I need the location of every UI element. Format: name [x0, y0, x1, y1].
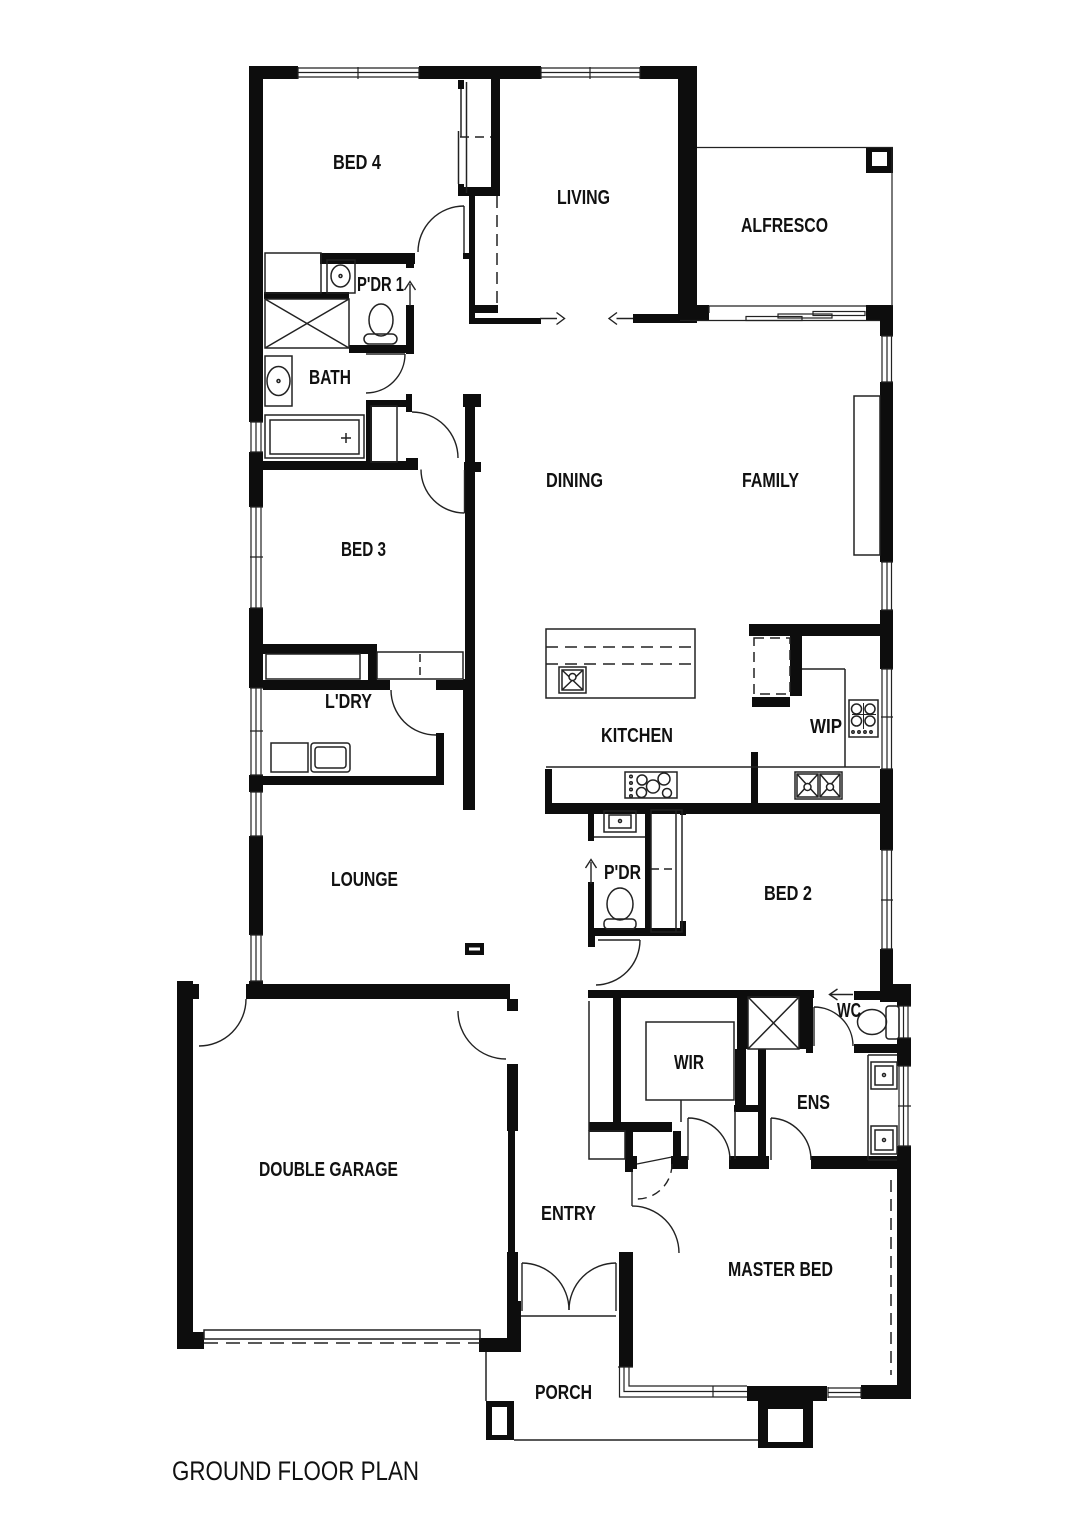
svg-text:WIR: WIR: [674, 1052, 704, 1074]
svg-text:WIP: WIP: [810, 716, 842, 738]
svg-text:LOUNGE: LOUNGE: [331, 869, 398, 891]
svg-text:DINING: DINING: [546, 470, 603, 492]
svg-text:BED 3: BED 3: [341, 539, 386, 561]
svg-text:GROUND FLOOR PLAN: GROUND FLOOR PLAN: [172, 1456, 419, 1486]
svg-text:MASTER BED: MASTER BED: [728, 1259, 833, 1281]
svg-text:DOUBLE GARAGE: DOUBLE GARAGE: [259, 1159, 398, 1181]
svg-text:LIVING: LIVING: [557, 187, 610, 209]
svg-text:L'DRY: L'DRY: [325, 691, 373, 713]
svg-text:BED 4: BED 4: [333, 152, 382, 174]
svg-text:ENS: ENS: [797, 1092, 830, 1114]
svg-text:BED 2: BED 2: [764, 883, 812, 905]
svg-text:FAMILY: FAMILY: [742, 470, 800, 492]
svg-text:WC: WC: [837, 1000, 861, 1022]
svg-text:ENTRY: ENTRY: [541, 1203, 597, 1225]
svg-text:KITCHEN: KITCHEN: [601, 725, 673, 747]
svg-text:P'DR 1: P'DR 1: [357, 274, 404, 296]
svg-text:BATH: BATH: [309, 367, 351, 389]
svg-text:P'DR: P'DR: [604, 862, 641, 884]
svg-text:ALFRESCO: ALFRESCO: [741, 215, 828, 237]
svg-text:PORCH: PORCH: [535, 1382, 592, 1404]
